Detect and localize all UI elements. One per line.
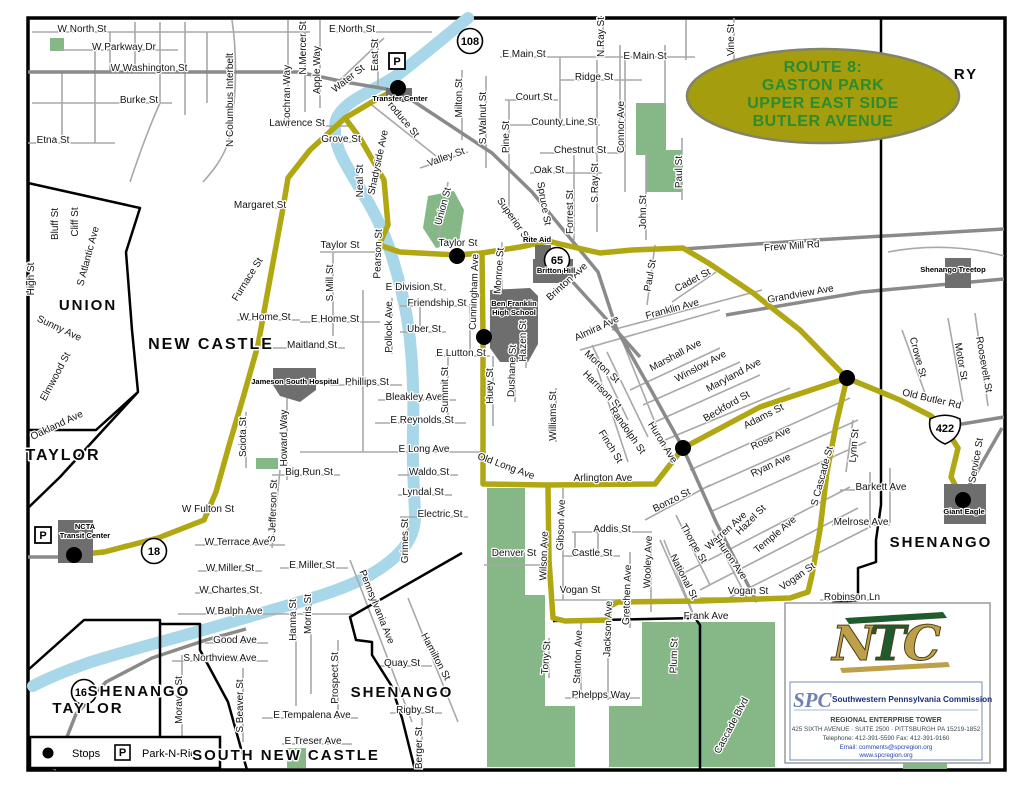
area-label: SOUTH NEW CASTLE <box>192 747 380 764</box>
route-shield-number: 422 <box>936 423 954 435</box>
area-label: SHENANGO <box>88 683 191 700</box>
street-label: W Miller St <box>206 563 255 574</box>
gaston-park <box>642 622 775 767</box>
spc-address-line: Telephone: 412-391-5590 Fax: 412-391-916… <box>823 735 950 742</box>
street-label: Huey St <box>485 368 496 404</box>
street-label: Friendship St <box>408 298 467 309</box>
street-label: Chestnut St <box>554 145 606 156</box>
street-label: Neal St <box>355 164 366 197</box>
route-map: Stops P Park-N-Ride SPC Southwestern Pen… <box>0 0 1024 791</box>
area-label: SHENANGO <box>890 534 993 551</box>
street-label: Paul St <box>674 156 685 188</box>
street-label: John St <box>638 195 649 229</box>
street-label: Pearson St <box>372 229 385 279</box>
street-label: Etna St <box>37 135 70 146</box>
spc-org-name: Southwestern Pennsylvania Commission <box>832 695 992 704</box>
landmark-label: NCTA <box>75 522 96 531</box>
street-label: Vogan St <box>560 585 601 596</box>
street-label: Gretchen Ave <box>621 564 634 625</box>
street-label: E Division St <box>386 282 443 293</box>
street-label: S Northview Ave <box>183 653 257 664</box>
stop-dot <box>675 440 691 456</box>
street-label: Margaret St <box>234 200 286 211</box>
street-label: Phelpps Way <box>572 690 631 701</box>
route-title-line: GASTON PARK <box>762 77 884 94</box>
gaston-park <box>487 595 545 767</box>
area-label: UNION <box>59 297 117 314</box>
landmark-label: Shenango Treetop <box>920 265 986 274</box>
street-label: W Balph Ave <box>205 606 263 617</box>
street-label: E Miller St <box>289 560 335 571</box>
street-label: E Reynolds St <box>390 415 454 426</box>
street-label: Denver St <box>492 548 537 559</box>
page: Stops P Park-N-Ride SPC Southwestern Pen… <box>0 0 1024 791</box>
street-label: Ridge St <box>575 72 614 83</box>
stop-dot <box>476 329 492 345</box>
street-label: W Fulton St <box>182 504 234 515</box>
spc-logo: SPC <box>793 688 833 712</box>
street-label: Good Ave <box>213 635 257 646</box>
street-label: E Home St <box>311 314 360 325</box>
street-label: Vine St <box>726 24 737 56</box>
street-label: N Columbus Interbelt <box>225 53 236 147</box>
street-label: Morris St <box>303 594 314 634</box>
stop-legend-icon <box>43 748 54 759</box>
park-n-ride-icon-letter: P <box>39 530 46 542</box>
street-label: Grove St <box>321 134 361 145</box>
park-n-ride-legend-letter: P <box>119 747 126 759</box>
street-label: Taylor St <box>321 240 360 251</box>
street-label: Stanton Ave <box>572 629 585 684</box>
street-label: Grimes St <box>400 519 411 564</box>
stop-dot <box>66 547 82 563</box>
street-label: S Ray St <box>590 163 601 203</box>
street-label: Bluff St <box>50 208 61 240</box>
street-label: Gibson Ave <box>555 499 568 551</box>
street-label: Milton St <box>454 78 465 117</box>
landmark-label: Giant Eagle <box>943 507 984 516</box>
street-label: E Main St <box>502 49 546 60</box>
street-label: S Walnut St <box>478 92 489 145</box>
street-label: W Chartes St <box>199 585 259 596</box>
street-label: Cochran Way <box>282 65 293 125</box>
street-label: E Lutton St <box>436 348 486 359</box>
area-label: NEW CASTLE <box>148 336 274 353</box>
street-label: Pollock Ave <box>384 301 395 353</box>
route-title-line: UPPER EAST SIDE <box>747 95 899 112</box>
street-label: S Beaver St <box>235 679 246 733</box>
street-label: E Long Ave <box>399 444 450 455</box>
route-shield-number: 108 <box>461 36 479 48</box>
street-label: Tony St <box>540 641 553 675</box>
street-label: Pine St <box>501 121 512 153</box>
street-label: Cliff St <box>70 207 81 236</box>
street-label: Vogan St <box>728 586 769 597</box>
street-label: Oak St <box>534 165 565 176</box>
stop-dot <box>449 248 465 264</box>
street-label: E Main St <box>623 51 667 62</box>
area-label: TAYLOR <box>25 447 100 464</box>
street-label: Bleakley Ave <box>385 392 443 403</box>
route-title-line: ROUTE 8: <box>784 59 863 76</box>
ntc-logo-letter: C <box>903 616 941 672</box>
area-label: RY <box>954 66 978 83</box>
street-label: East St <box>370 39 381 71</box>
street-label: Frank Ave <box>684 611 729 622</box>
gaston-park <box>609 706 642 767</box>
park-area <box>50 38 64 51</box>
gaston-park <box>545 706 575 767</box>
street-label: W Home St <box>239 312 290 323</box>
street-label: Prospect St <box>330 652 341 704</box>
street-label: Apple Way <box>312 46 323 94</box>
street-label: Hanna St <box>288 599 299 641</box>
street-label: Quay St <box>384 658 420 669</box>
landmark-label: High School <box>492 308 536 317</box>
street-label: W Parkway Dr <box>92 42 157 53</box>
landmark-label: Rite Aid <box>523 235 551 244</box>
street-label: Electric St <box>417 509 462 520</box>
spc-address-line: 425 SIXTH AVENUE · SUITE 2500 · PITTSBUR… <box>792 726 981 733</box>
street-label: Lawrence St <box>269 118 325 129</box>
area-label: SHENANGO <box>351 684 454 701</box>
street-label: E Treser Ave <box>284 736 342 747</box>
street-label: N Ray St <box>596 17 607 57</box>
street-label: Taylor St <box>439 238 478 249</box>
spc-email: Email: comments@spcregion.org <box>840 744 933 751</box>
stop-dot <box>955 492 971 508</box>
street-label: Berger St <box>414 727 425 769</box>
street-label: Waldo St <box>409 467 449 478</box>
landmark-label: Jameson South Hospital <box>251 377 339 386</box>
legend-stops-label: Stops <box>72 748 101 760</box>
street-label: Melrose Ave <box>834 517 889 528</box>
street-label: S Jefferson St <box>267 479 280 542</box>
landmark-label: Transfer Center <box>372 94 428 103</box>
street-label: Wilson Ave <box>538 531 551 581</box>
street-label: Rigby St <box>396 705 434 716</box>
park-area <box>636 103 666 155</box>
street-label: Lyndal St <box>402 487 444 498</box>
park-n-ride-icon-letter: P <box>393 56 400 68</box>
landmark-label: Transit Center <box>60 531 111 540</box>
street-label: N Mercer St <box>298 21 309 75</box>
spc-website: www.spcregion.org <box>858 752 913 759</box>
street-label: Court St <box>516 92 553 103</box>
spc-address-line: REGIONAL ENTERPRISE TOWER <box>830 717 941 724</box>
street-label: Howard Way <box>279 410 290 467</box>
stop-dot <box>839 370 855 386</box>
street-label: Plum St <box>668 638 680 674</box>
street-label: W North St <box>58 24 107 35</box>
street-label: S Mill St <box>325 264 336 301</box>
street-label: Arlington Ave <box>574 473 633 484</box>
park-area <box>256 458 278 469</box>
landmark-label: Britton Hill <box>537 266 575 275</box>
street-label: Robinson Ln <box>824 592 880 603</box>
street-label: Phillips St <box>345 377 389 388</box>
gaston-park <box>487 488 525 598</box>
street-label: W Washington St <box>111 63 188 74</box>
street-label: Wooley Ave <box>642 535 655 588</box>
street-label: Summit St <box>440 367 451 413</box>
street-label: E North St <box>329 24 375 35</box>
street-label: Connor Ave <box>616 101 627 154</box>
street-label: Sciota St <box>238 417 249 457</box>
street-label: Burke St <box>120 95 159 106</box>
route-shield-number: 18 <box>148 546 160 558</box>
street-label: Williams St <box>548 391 559 441</box>
street-label: High St <box>26 262 37 295</box>
street-label: Uber St <box>407 324 441 335</box>
street-label: Castle St <box>572 548 613 559</box>
street-label: Forrest St <box>565 190 576 234</box>
street-label: Dushane St <box>506 344 519 397</box>
street-label: E Tempalena Ave <box>273 710 351 721</box>
area-label: TAYLOR <box>52 700 123 717</box>
street-label: Maitland St <box>287 340 337 351</box>
street-label: Jackson Ave <box>602 600 615 657</box>
street-label: Big Run St <box>285 467 333 478</box>
street-label: County Line St <box>531 117 597 128</box>
street-label: W Terrace Ave <box>205 537 270 548</box>
street-label: Addis St <box>593 524 630 535</box>
route-title-line: BUTLER AVENUE <box>753 113 894 130</box>
landmark-label: Ben Franklin <box>491 299 537 308</box>
street-label: Hazen St <box>518 320 529 361</box>
street-label: Barkett Ave <box>856 482 907 493</box>
